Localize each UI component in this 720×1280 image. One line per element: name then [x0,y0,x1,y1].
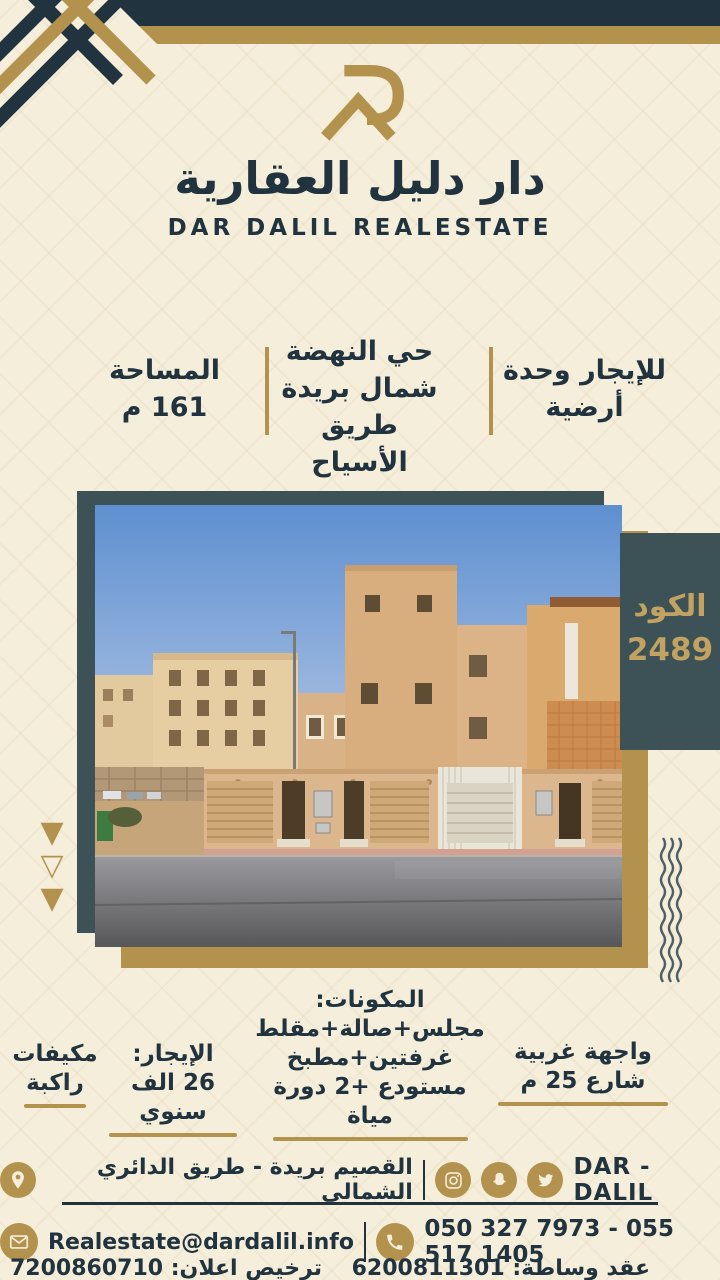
snapchat-icon[interactable] [481,1162,517,1198]
office-address: القصيم بريدة - طريق الدائري الشمالي [46,1155,413,1205]
location-pin-icon [0,1162,36,1198]
triangle-down-icon: ▼ [28,816,76,849]
code-badge: الكود 2489 [620,533,720,750]
footer-divider-line [62,1202,658,1205]
components-line: مستودع +2 دورة مياة [251,1073,489,1131]
brand-name-english: DAR DALIL REALESTATE [0,215,720,241]
code-label: الكود [620,589,720,624]
property-location: حي النهضة شمال بريدة طريق الأسياح [272,333,447,481]
gold-underline [24,1104,86,1108]
triangle-down-outline-icon: ▽ [28,849,76,882]
components-title: المكونات: [251,986,489,1015]
property-area: المساحة 161 م [82,352,247,426]
ac-detail: مكيفات راكبة [1,1040,109,1108]
gold-underline [273,1137,468,1141]
footer-divider [423,1160,426,1200]
components-line: غرفتين+مطبخ [251,1044,489,1073]
area-label: المساحة [82,352,247,389]
rent-detail: الإيجار: 26 الف سنوي [98,1040,248,1137]
footer-brand-name: DAR - DALIL [573,1154,720,1206]
wave-ornament-icon [656,836,692,988]
footer-location-row: القصيم بريدة - طريق الدائري الشمالي DAR … [0,1154,720,1206]
triangle-ornament: ▼ ▽ ▼ [28,816,76,915]
brand-block: دار دليل العقارية DAR DALIL REALESTATE [0,62,720,241]
instagram-icon[interactable] [435,1162,471,1198]
code-value: 2489 [620,632,720,668]
rent-label: الإيجار: [98,1040,248,1069]
property-photo [95,505,622,947]
facade-detail: واجهة غربية شارع 25 م [473,1038,693,1106]
gold-underline [109,1133,237,1137]
dar-dalil-logo-icon [314,62,406,142]
area-value: 161 م [82,389,247,426]
brand-name-arabic: دار دليل العقارية [0,152,720,205]
location-line: شمال بريدة [272,370,447,407]
flyer-canvas: دار دليل العقارية DAR DALIL REALESTATE ل… [0,0,720,1280]
summary-divider [489,347,493,435]
ad-license-number: ترخيص اعلان: 7200860710 [10,1256,322,1280]
ac-line: راكبة [1,1069,109,1098]
ac-line: مكيفات [1,1040,109,1069]
components-detail: المكونات: مجلس+صالة+مقلط غرفتين+مطبخ مست… [251,986,489,1141]
contact-email[interactable]: Realestate@dardalil.info [48,1230,354,1255]
location-line: حي النهضة [272,333,447,370]
components-line: مجلس+صالة+مقلط [251,1015,489,1044]
twitter-icon[interactable] [527,1162,563,1198]
triangle-down-icon: ▼ [28,882,76,915]
offer-line: أرضية [497,389,672,426]
location-line: طريق الأسياح [272,407,447,481]
summary-divider [265,347,269,435]
rent-value: 26 الف سنوي [98,1069,248,1127]
facade-line: واجهة غربية [473,1038,693,1067]
brokerage-contract-number: عقد وساطة: 6200811301 [352,1256,650,1280]
facade-line: شارع 25 م [473,1067,693,1096]
offer-type: للإيجار وحدة أرضية [497,352,672,426]
offer-line: للإيجار وحدة [497,352,672,389]
gold-underline [498,1102,668,1106]
